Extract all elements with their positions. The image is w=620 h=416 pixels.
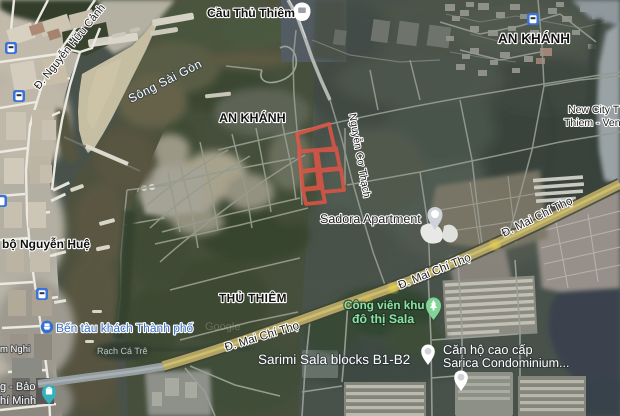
svg-text:Thiem - Venic: Thiem - Venic — [564, 117, 620, 129]
svg-text:g - Bảo: g - Bảo — [0, 381, 35, 393]
svg-text:THỦ THIÊM: THỦ THIÊM — [219, 291, 287, 305]
svg-text:New City T: New City T — [568, 104, 620, 116]
svg-text:Cầu Thủ Thiêm: Cầu Thủ Thiêm — [207, 6, 295, 20]
svg-text:Công viên khu: Công viên khu — [344, 299, 425, 312]
svg-text:Sarimi Sala blocks B1-B2: Sarimi Sala blocks B1-B2 — [258, 352, 410, 367]
svg-text:Sarica Condominium...: Sarica Condominium... — [443, 356, 569, 370]
svg-text:Google: Google — [205, 321, 240, 333]
svg-text:Rạch Cá Trê: Rạch Cá Trê — [97, 346, 148, 356]
svg-text:Căn hộ cao cấp: Căn hộ cao cấp — [443, 342, 533, 357]
svg-text:AN KHÁNH: AN KHÁNH — [498, 31, 570, 46]
svg-text:AN KHÁNH: AN KHÁNH — [219, 110, 286, 125]
svg-text:m Nghi: m Nghi — [0, 344, 30, 355]
svg-text:bộ Nguyễn Huệ: bộ Nguyễn Huệ — [2, 237, 90, 251]
svg-text:Sadora Apartment: Sadora Apartment — [320, 212, 421, 226]
svg-text:đô thị Sala: đô thị Sala — [352, 312, 414, 326]
svg-text:hí Minh: hí Minh — [0, 395, 36, 407]
svg-text:Bến tàu khách Thành phố: Bến tàu khách Thành phố — [56, 321, 194, 335]
